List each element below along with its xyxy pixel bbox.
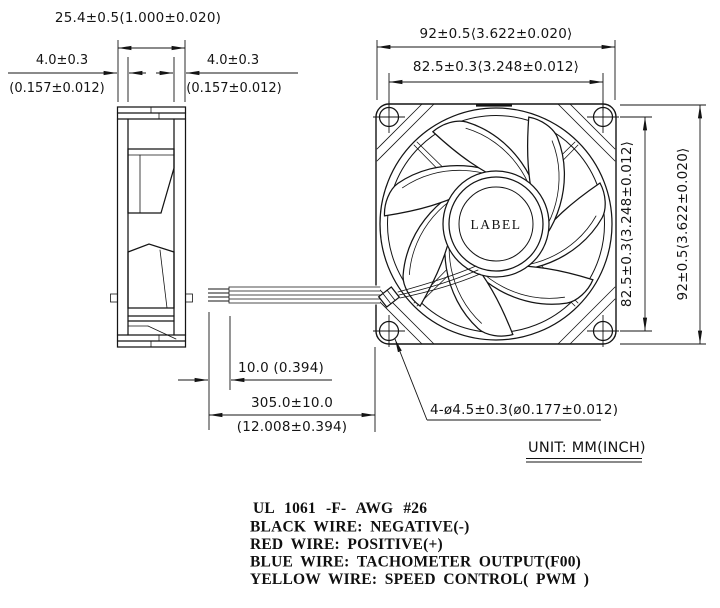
dim-flange-rear-inch-label: (0.157±0.012) xyxy=(186,81,281,96)
dim-height-label: 92±0.5⟨3.622±0.020⟩ xyxy=(675,148,691,301)
wire-spec-line: UL 1061 -F- AWG #26 xyxy=(253,500,427,517)
blue-wire-line: BLUE WIRE: TACHOMETER OUTPUT(F00) xyxy=(250,554,581,571)
dim-hole-pitch-v-label: 82.5±0.3⟨3.248±0.012⟩ xyxy=(619,141,635,307)
dim-width-label: 92±0.5⟨3.622±0.020⟩ xyxy=(420,26,573,42)
dim-flange-rear-label: 4.0±0.3 xyxy=(207,53,259,68)
mounting-hole-callout: 4-ø4.5±0.3(ø0.177±0.012) xyxy=(395,339,618,420)
fan-dimension-drawing: 25.4±0.5(1.000±0.020) 4.0±0.3 (0.157±0.0… xyxy=(0,0,720,608)
black-wire-line: BLACK WIRE: NEGATIVE(-) xyxy=(250,519,469,536)
lead-wire-dimensions: 10.0 (0.394) 305.0±10.0 (12.008±0.394) xyxy=(178,312,375,435)
red-wire-line: RED WIRE: POSITIVE(+) xyxy=(250,536,443,553)
dim-lead-length-inch-label: (12.008±0.394) xyxy=(237,419,348,435)
fan-side-view xyxy=(111,107,193,347)
side-view-dimensions: 25.4±0.5(1.000±0.020) 4.0±0.3 (0.157±0.0… xyxy=(8,10,298,102)
hub-label-text: LABEL xyxy=(471,217,522,232)
unit-note-text: UNIT: MM(INCH) xyxy=(528,440,646,456)
dim-mounting-holes-label: 4-ø4.5±0.3(ø0.177±0.012) xyxy=(430,402,618,418)
front-view-right-dimensions: 82.5±0.3⟨3.248±0.012⟩ 92±0.5⟨3.622±0.020… xyxy=(619,105,706,344)
front-view-top-dimensions: 92±0.5⟨3.622±0.020⟩ 82.5±0.3⟨3.248±0.012… xyxy=(377,26,615,111)
hub: LABEL xyxy=(443,171,549,277)
yellow-wire-line: YELLOW WIRE: SPEED CONTROL( PWM ) xyxy=(250,571,589,588)
dim-depth-label: 25.4±0.5(1.000±0.020) xyxy=(55,10,221,26)
dim-flange-front-inch-label: (0.157±0.012) xyxy=(9,81,104,96)
dim-lead-length-mm-label: 305.0±10.0 xyxy=(251,395,333,411)
dim-strip-length-label: 10.0 (0.394) xyxy=(238,360,324,376)
wire-notes-block: UL 1061 -F- AWG #26 BLACK WIRE: NEGATIVE… xyxy=(250,500,589,588)
technical-drawing-canvas: 25.4±0.5(1.000±0.020) 4.0±0.3 (0.157±0.0… xyxy=(0,0,720,608)
dim-flange-front-label: 4.0±0.3 xyxy=(36,53,88,68)
fan-front-view: LABEL xyxy=(373,101,619,347)
dim-hole-pitch-h-label: 82.5±0.3⟨3.248±0.012⟩ xyxy=(413,59,579,75)
unit-note: UNIT: MM(INCH) xyxy=(526,440,646,462)
stripped-wire-tips xyxy=(208,289,229,301)
lead-wire-bundle xyxy=(208,286,399,308)
